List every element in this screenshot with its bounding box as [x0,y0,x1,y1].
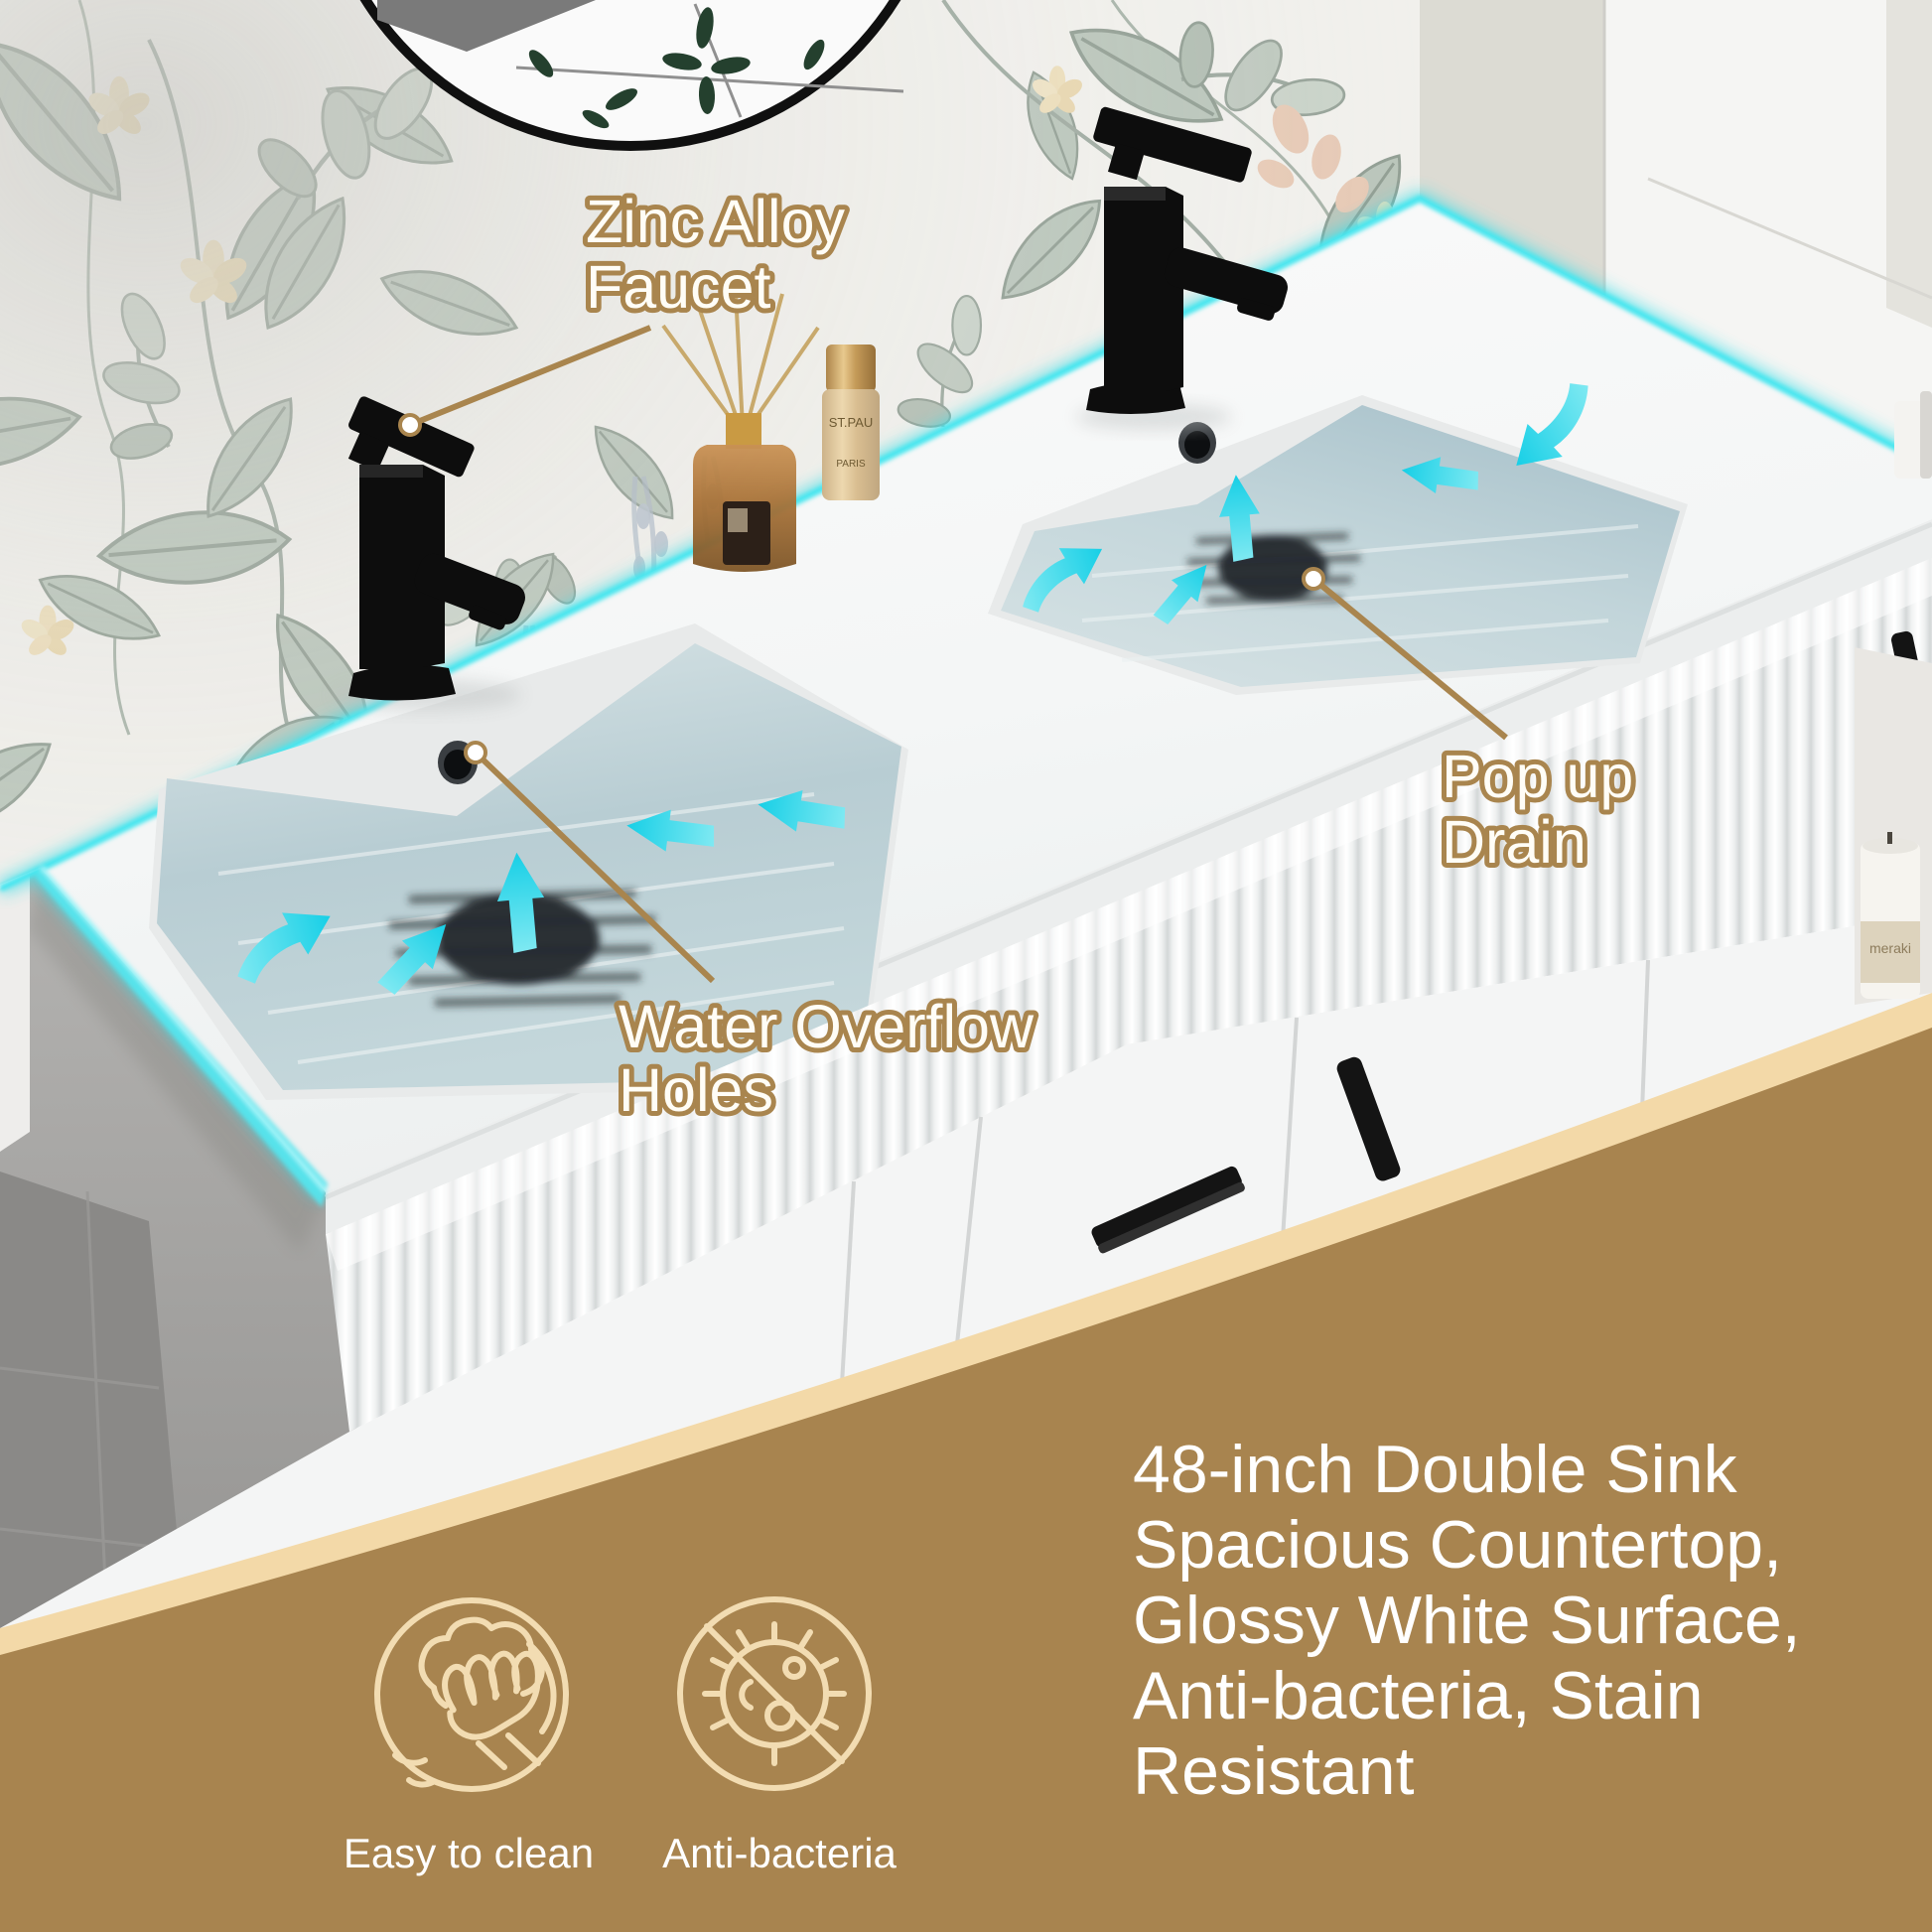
svg-text:PARIS: PARIS [836,459,866,470]
svg-text:ST.PAU: ST.PAU [829,415,874,430]
svg-text:Anti-bacteria: Anti-bacteria [662,1830,897,1876]
svg-text:meraki: meraki [1869,940,1911,956]
svg-text:Easy to clean: Easy to clean [344,1830,594,1876]
